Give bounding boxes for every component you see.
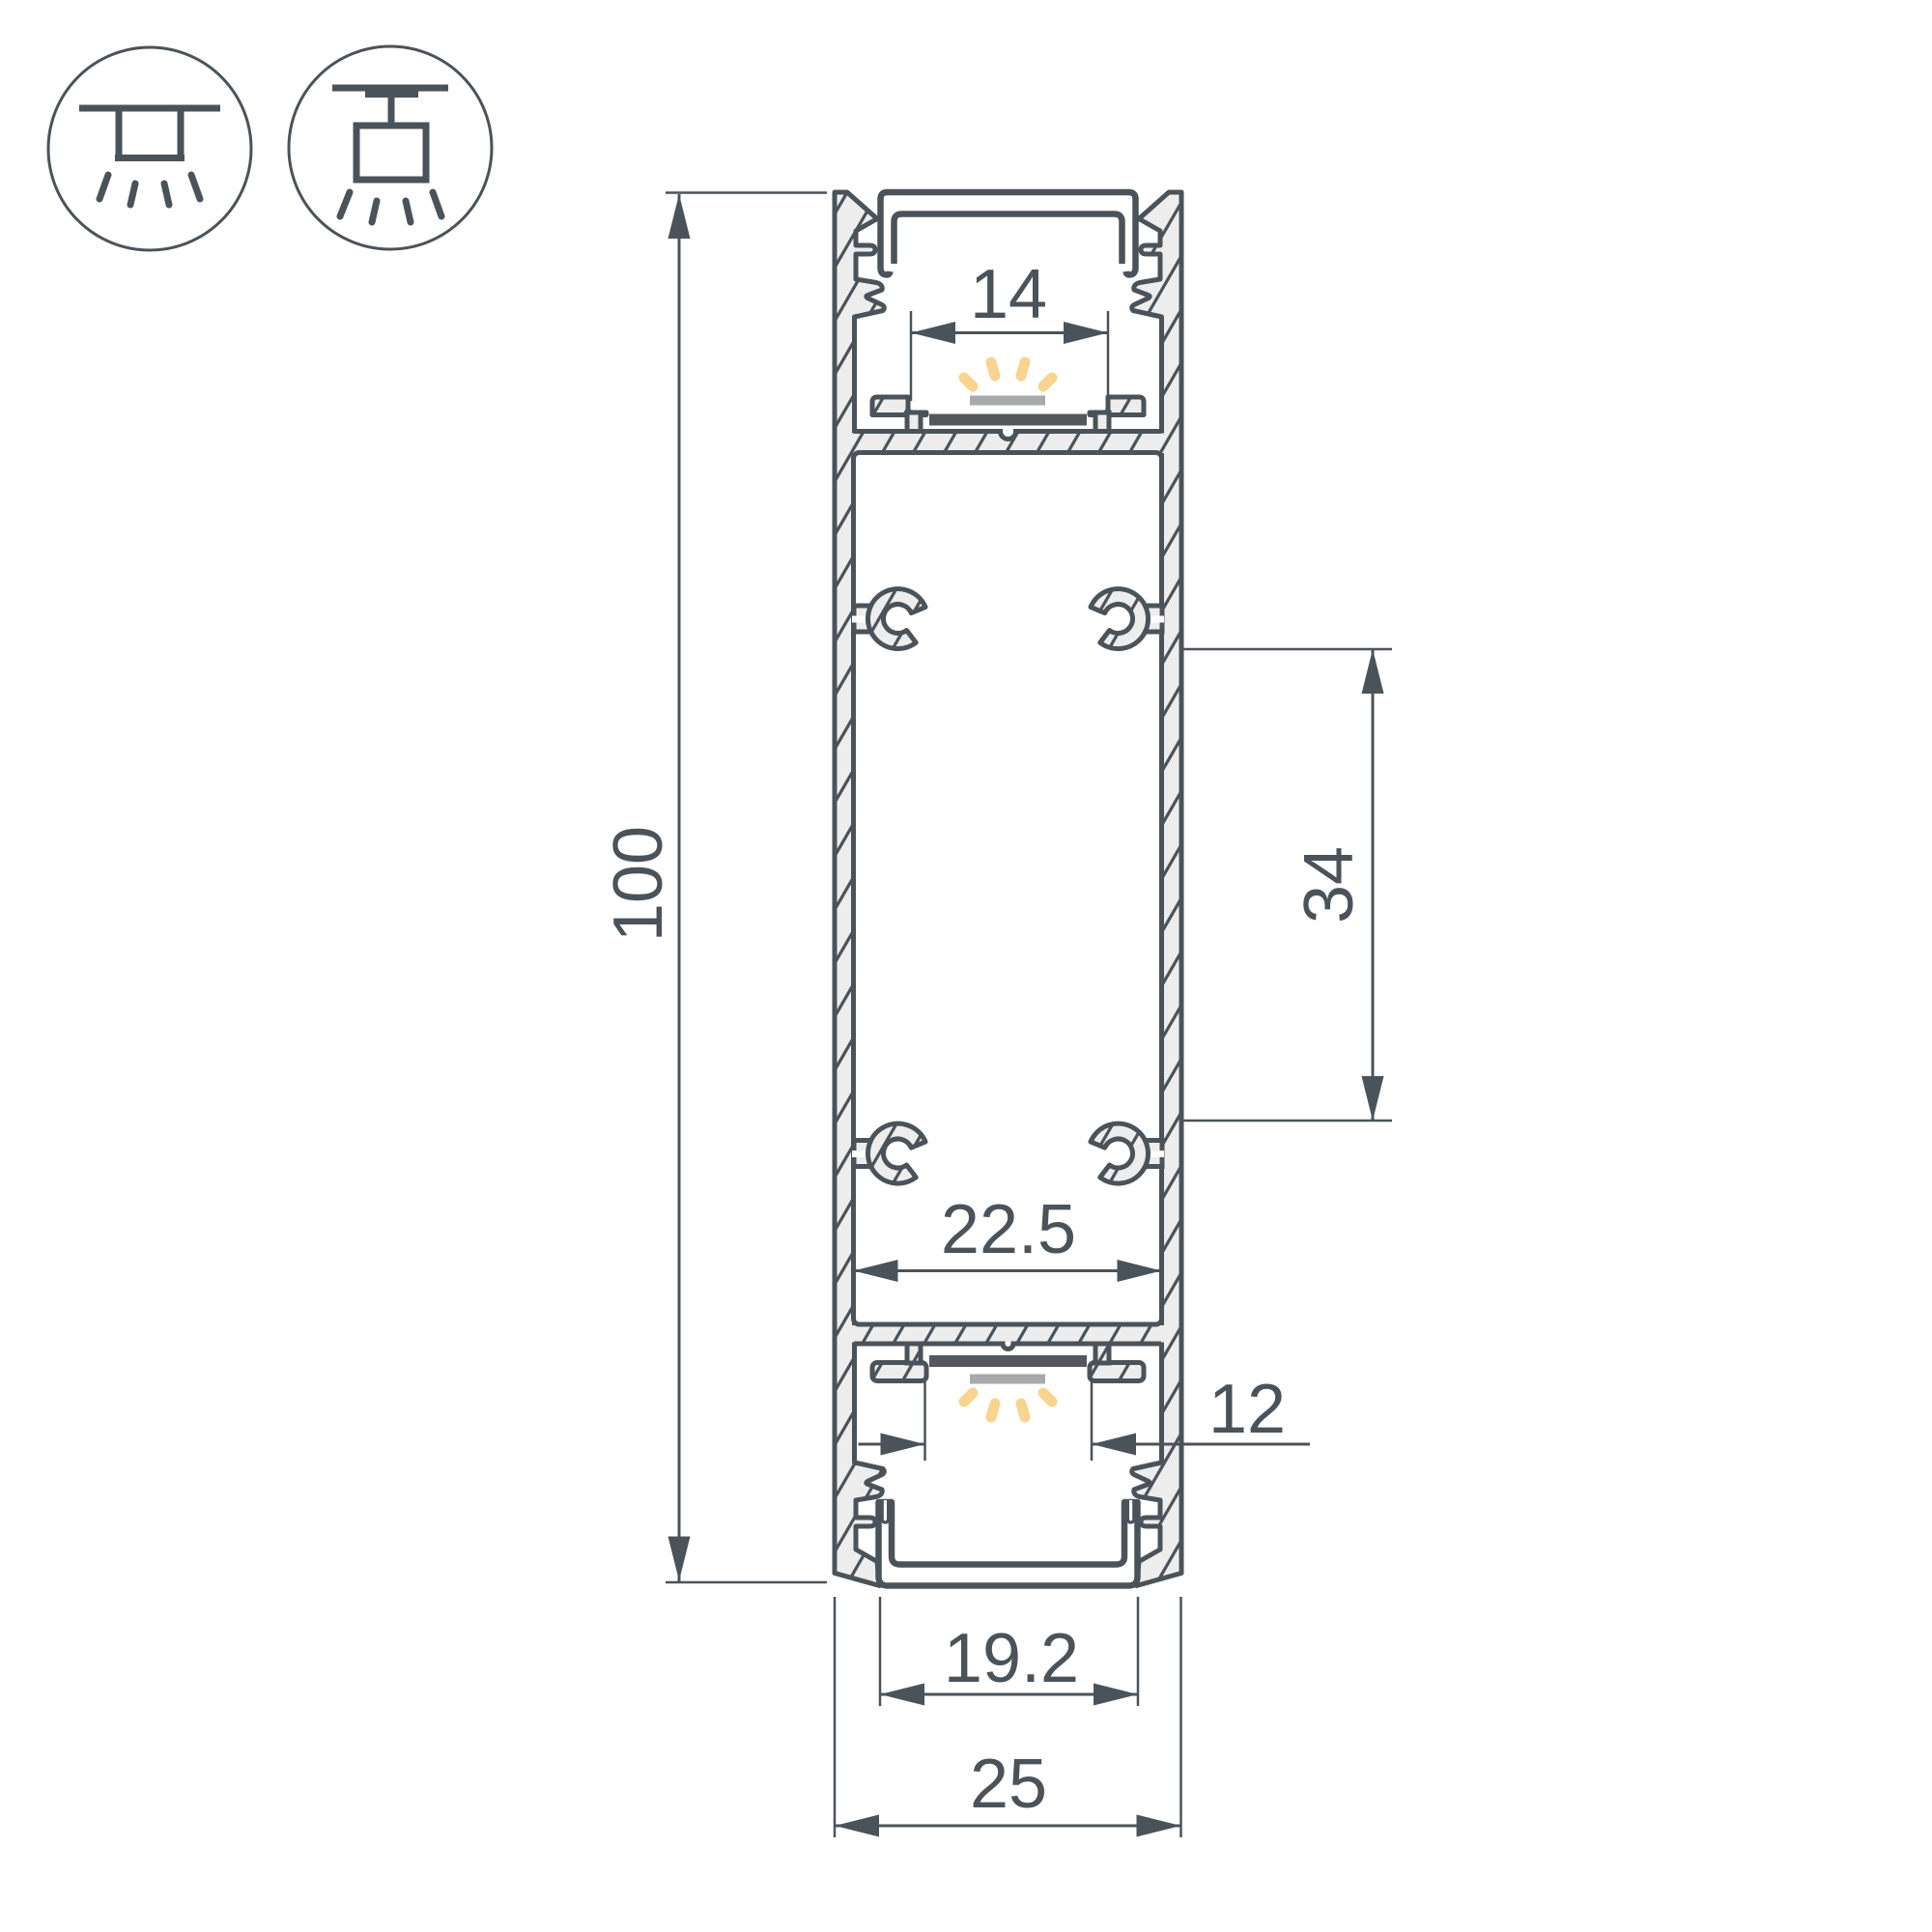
svg-text:22.5: 22.5 (941, 1191, 1076, 1268)
svg-text:12: 12 (1208, 1371, 1286, 1448)
svg-text:100: 100 (600, 826, 677, 942)
svg-text:25: 25 (970, 1746, 1047, 1823)
svg-text:19.2: 19.2 (944, 1620, 1079, 1697)
svg-text:14: 14 (970, 256, 1047, 333)
svg-text:34: 34 (1291, 846, 1368, 923)
